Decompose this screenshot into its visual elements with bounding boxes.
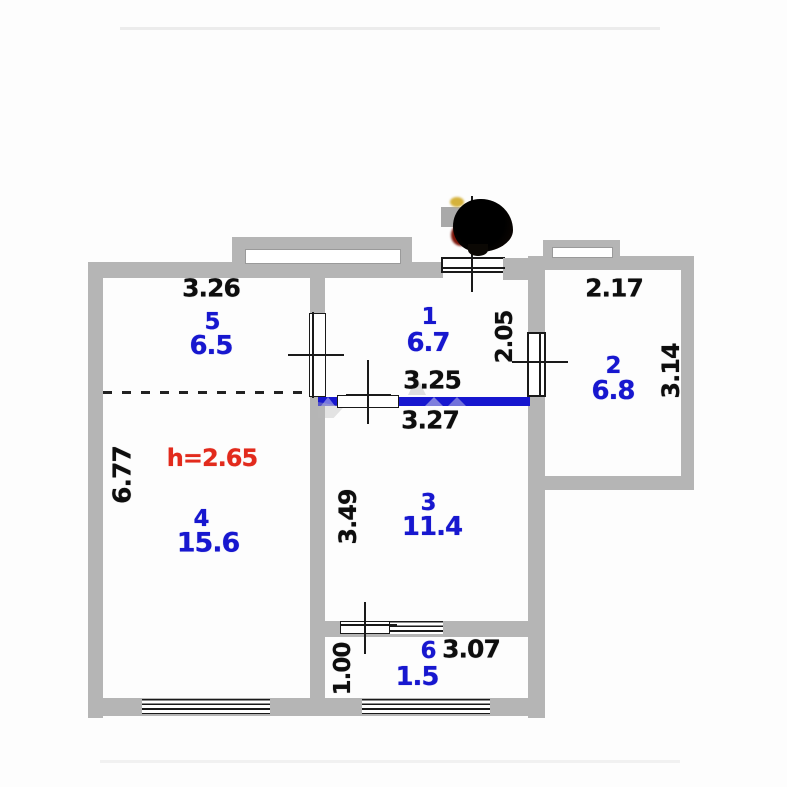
wall-top-main [88, 262, 443, 278]
room6-number: 6 [420, 638, 435, 664]
wall-mid-right-upper [528, 270, 545, 332]
dim-tick [367, 360, 369, 424]
wall-room2-top [528, 256, 694, 270]
protrusion-interior [245, 249, 401, 264]
room2-window-box-interior [552, 247, 613, 258]
dim-room4-left: 6.77 [108, 446, 137, 504]
window-balcony-bottom [362, 699, 490, 714]
dim-tick [441, 267, 505, 269]
zone-dashed-line [103, 391, 310, 394]
dim-tick [340, 624, 397, 626]
dim-tick [364, 602, 366, 654]
dim-balcony-top: 3.07 [442, 635, 500, 664]
ceiling-height-note: h=2.65 [167, 444, 257, 472]
dim-room3-left: 3.49 [334, 489, 362, 544]
window-room3-balcony [390, 621, 443, 634]
dim-balcony-left: 1.00 [330, 643, 356, 696]
scan-artifact-top [120, 27, 660, 30]
dim-room5-top: 3.26 [182, 274, 240, 303]
room2-area: 6.8 [591, 376, 634, 406]
wall-mid-right-lower [528, 397, 545, 718]
dim-tick [288, 354, 344, 356]
wall-room5-room1 [310, 270, 325, 313]
wall-left-outer [88, 262, 103, 718]
dim-tick [539, 333, 541, 396]
floor-plan: 3.26 2.17 2.05 3.14 3.25 3.27 6.77 3.49 … [0, 0, 787, 787]
wall-room2-bottom [545, 476, 694, 490]
room1-area: 6.7 [406, 328, 449, 358]
room4-area: 15.6 [177, 528, 240, 559]
room3-area: 11.4 [402, 512, 462, 542]
dim-opening-above: 3.25 [403, 366, 461, 395]
dim-room1-right: 2.05 [492, 311, 518, 364]
dim-room2-top: 2.17 [585, 274, 643, 303]
dim-opening-below: 3.27 [401, 406, 459, 435]
wall-room4-room3 [310, 397, 325, 698]
window-room1-top [441, 257, 505, 273]
window-room4-bottom [142, 699, 270, 714]
room1-number: 1 [421, 304, 436, 330]
dim-room2-right: 3.14 [657, 343, 685, 398]
room5-area: 6.5 [189, 331, 232, 361]
dim-tick [312, 312, 314, 398]
ink-blob-drip [468, 244, 488, 256]
room6-area: 1.5 [395, 662, 438, 692]
window-room1-room2 [527, 332, 546, 397]
scan-artifact-bottom [100, 760, 680, 763]
